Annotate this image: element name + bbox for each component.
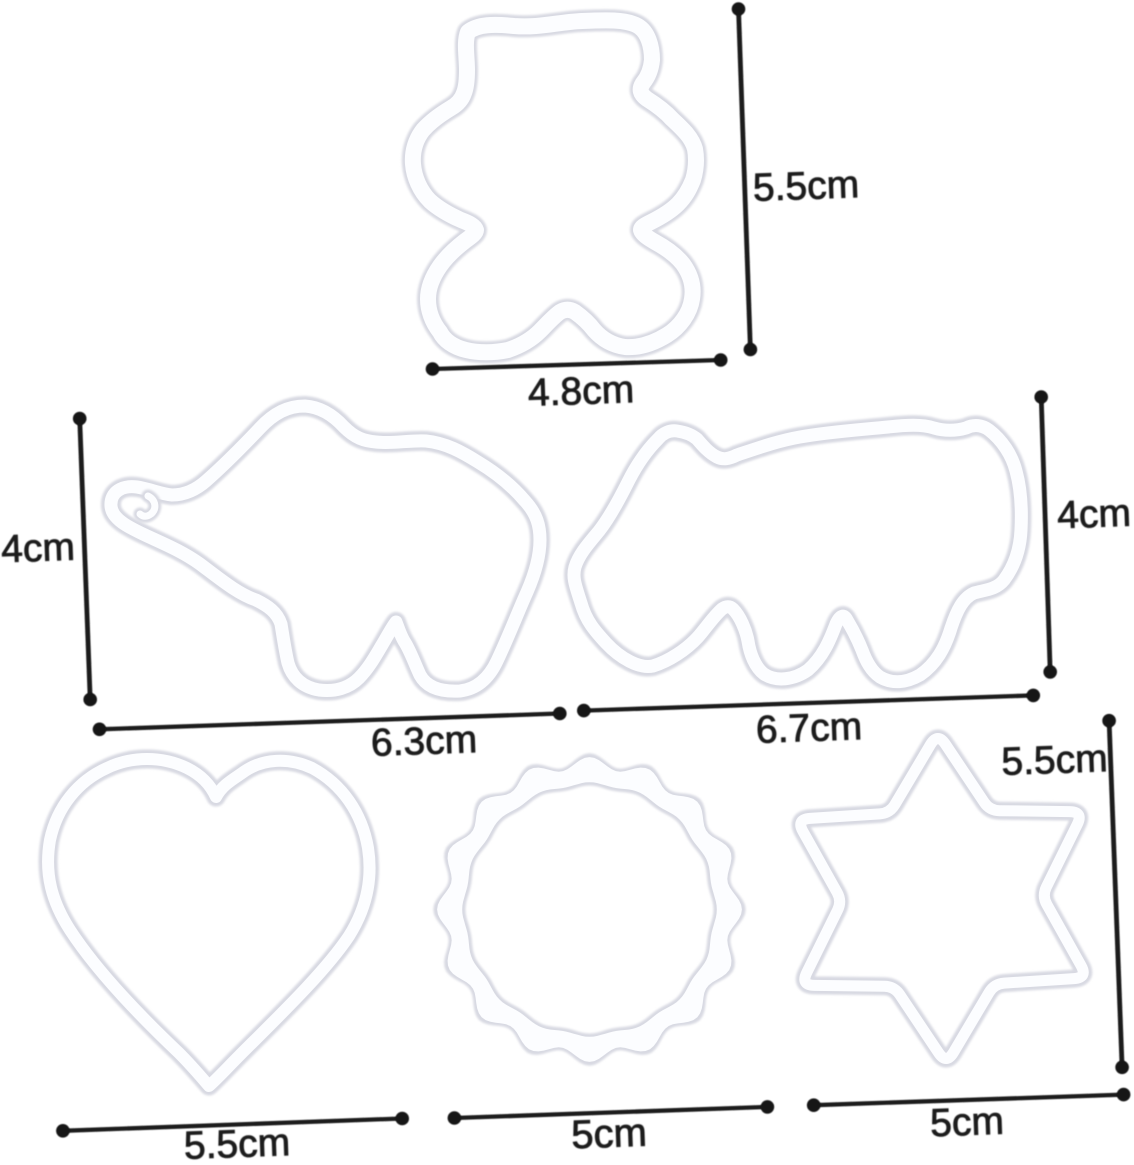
- svg-text:4cm: 4cm: [1056, 492, 1131, 538]
- svg-text:6.3cm: 6.3cm: [370, 718, 478, 765]
- svg-text:5.5cm: 5.5cm: [752, 163, 860, 210]
- svg-text:4.8cm: 4.8cm: [527, 368, 635, 415]
- svg-text:6.7cm: 6.7cm: [755, 705, 863, 752]
- svg-text:5.5cm: 5.5cm: [1001, 737, 1109, 784]
- svg-text:4cm: 4cm: [0, 526, 75, 572]
- svg-text:5cm: 5cm: [929, 1100, 1004, 1146]
- svg-text:5.5cm: 5.5cm: [183, 1121, 291, 1165]
- svg-text:5cm: 5cm: [570, 1111, 647, 1158]
